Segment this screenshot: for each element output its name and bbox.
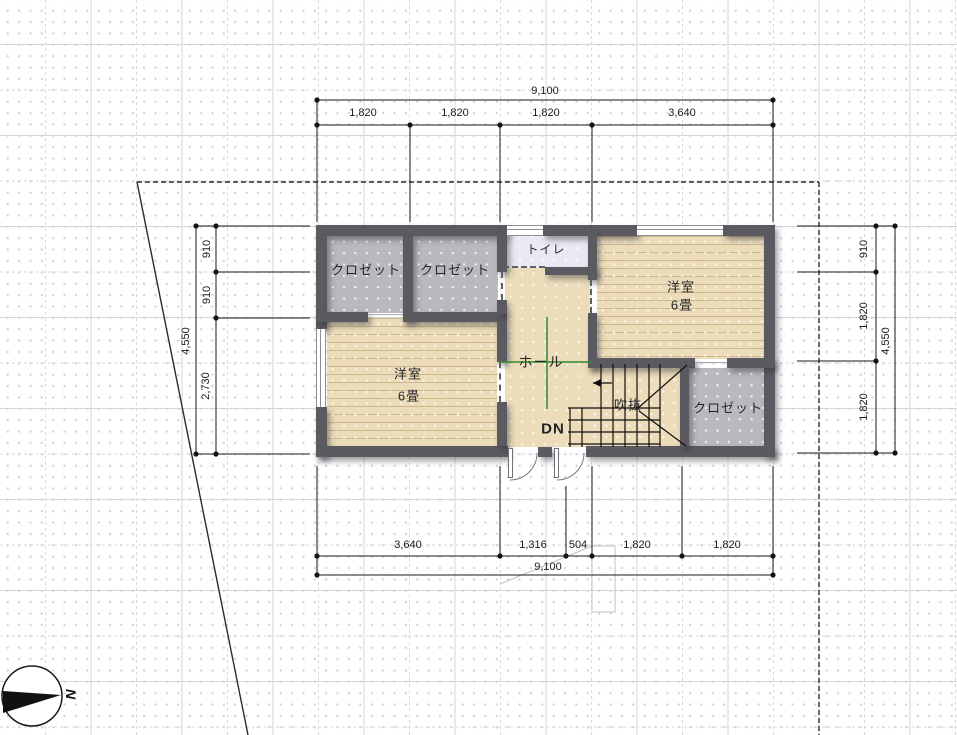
- wall-segment: [588, 358, 695, 368]
- dim-label-right-2: 1,820: [858, 302, 870, 330]
- wall-segment: [316, 446, 508, 457]
- dim-label-bottom-5: 1,820: [713, 539, 741, 551]
- wall-segment: [497, 322, 507, 362]
- window: [507, 225, 543, 236]
- dim-label-right-3: 1,820: [858, 393, 870, 421]
- wall-segment: [764, 236, 775, 457]
- window: [316, 329, 326, 407]
- entrance-door-leaf: [508, 448, 513, 478]
- bedroom-left-floor: [327, 318, 497, 447]
- closet-opening-line: [695, 362, 727, 363]
- dim-label-bottom-3: 504: [569, 539, 587, 551]
- room-label-bedroom-right: 洋室: [667, 277, 695, 296]
- doorway-dashed: [590, 280, 592, 313]
- dim-label-bottom-4: 1,820: [623, 539, 651, 551]
- dim-label-left-2: 910: [201, 286, 213, 304]
- dim-label-top-2: 1,820: [441, 107, 469, 119]
- wall-segment: [403, 236, 413, 322]
- dim-label-left-overall: 4,550: [180, 327, 192, 355]
- wall-segment: [497, 300, 507, 314]
- dim-label-right-overall: 4,550: [880, 327, 892, 355]
- dim-label-top-1: 1,820: [349, 107, 377, 119]
- wall-segment: [497, 402, 507, 446]
- wall-segment: [316, 225, 508, 236]
- floor-plan-canvas: クロゼット クロゼット トイレ 洋室 6畳 洋室 6畳 ホール 吹抜 DN クロ…: [0, 0, 957, 735]
- room-label-hall: ホール: [519, 352, 564, 372]
- room-label-closet-tl1: クロゼット: [331, 260, 401, 279]
- dim-label-top-4: 3,640: [668, 107, 696, 119]
- doorway-dashed: [501, 272, 503, 300]
- wall-segment: [588, 232, 597, 280]
- room-size-bedroom-left: 6畳: [398, 386, 420, 405]
- dim-label-left-1: 910: [201, 240, 213, 258]
- porch-outline: [500, 546, 615, 612]
- dim-label-right-1: 910: [858, 240, 870, 258]
- room-label-closet-br: クロゼット: [693, 398, 763, 417]
- stairs-down-label: DN: [541, 421, 565, 438]
- wall-segment: [723, 225, 775, 236]
- room-label-bedroom-left: 洋室: [394, 364, 422, 383]
- room-label-closet-tl2: クロゼット: [420, 260, 490, 279]
- dim-label-left-3: 2,730: [200, 372, 212, 400]
- closet-opening-line: [368, 314, 403, 315]
- wall-segment: [403, 312, 507, 322]
- room-label-toilet: トイレ: [526, 241, 565, 258]
- north-label: N: [63, 689, 79, 699]
- wall-segment: [316, 312, 368, 322]
- dim-label-bottom-2: 1,316: [519, 539, 547, 551]
- dim-label-bottom-overall: 9,100: [534, 561, 562, 573]
- wall-segment: [727, 358, 775, 368]
- wall-segment: [586, 446, 775, 457]
- dim-label-top-overall: 9,100: [531, 85, 559, 97]
- room-size-bedroom-right: 6畳: [671, 295, 693, 314]
- room-label-stair-void: 吹抜: [614, 395, 642, 414]
- doorway-dashed: [499, 362, 501, 402]
- entrance-mullion: [538, 447, 552, 457]
- wall-segment: [680, 363, 689, 446]
- entrance-door-leaf: [554, 448, 559, 478]
- dim-label-top-3: 1,820: [532, 107, 560, 119]
- toilet-sliding-door: [503, 266, 545, 268]
- dim-label-bottom-1: 3,640: [394, 539, 422, 551]
- window: [637, 225, 723, 236]
